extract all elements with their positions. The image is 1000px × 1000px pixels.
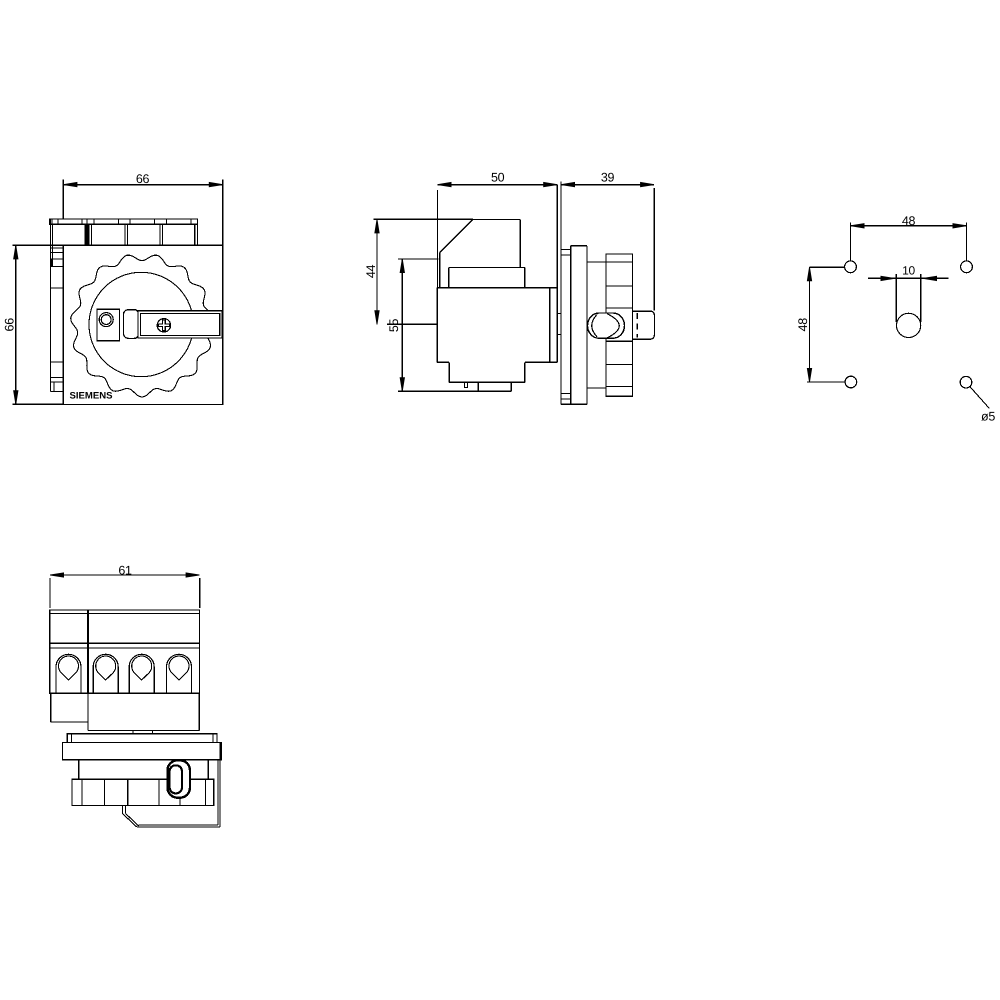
svg-text:48: 48 <box>902 214 916 228</box>
svg-text:55: 55 <box>387 319 401 333</box>
svg-text:61: 61 <box>118 563 132 577</box>
svg-text:SIEMENS: SIEMENS <box>70 389 113 400</box>
svg-text:50: 50 <box>491 171 505 185</box>
svg-text:66: 66 <box>136 172 150 186</box>
svg-text:66: 66 <box>3 318 17 332</box>
svg-text:44: 44 <box>364 265 378 279</box>
svg-text:ø5: ø5 <box>981 410 995 424</box>
svg-text:48: 48 <box>796 318 810 332</box>
svg-text:10: 10 <box>902 264 915 278</box>
svg-text:39: 39 <box>601 171 615 185</box>
